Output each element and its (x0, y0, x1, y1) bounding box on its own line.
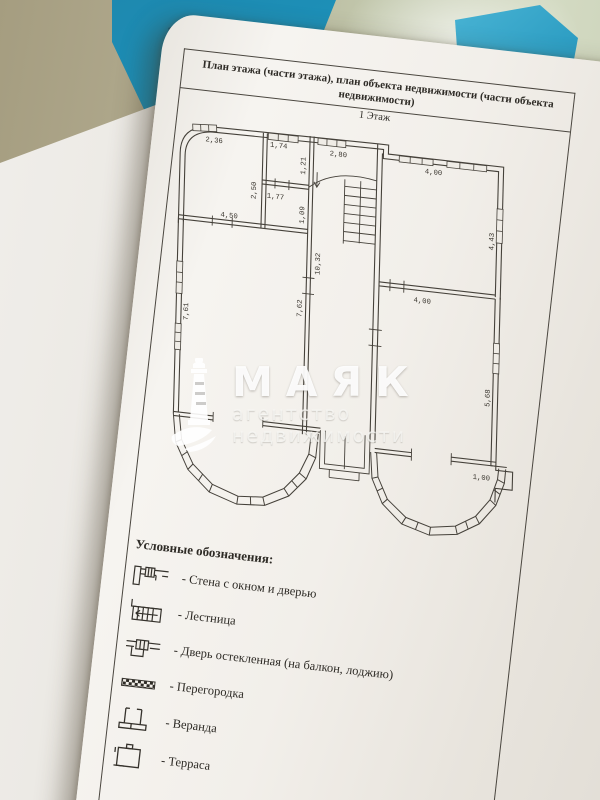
dim-room-tr-height: 4,43 (489, 233, 497, 251)
plan-porch (319, 430, 370, 482)
dim-hall-width: 2,80 (330, 150, 348, 160)
plan-windows (175, 121, 505, 386)
dim-room-tl-height: 2,50 (251, 181, 259, 199)
plan-dimensions: 2,36 1,74 2,80 4,00 1,77 4,50 4,00 1,00 … (179, 132, 498, 484)
dim-room-t2-height: 1,09 (299, 206, 307, 224)
legend: Условные обозначения: - Стена с окном и … (109, 536, 484, 800)
plan-walls (172, 121, 521, 504)
wall-window-door-icon (131, 560, 172, 590)
dim-room-t2-width: 1,77 (267, 193, 285, 203)
legend-item-label: - Лестница (177, 607, 236, 628)
plan-bay-right (369, 452, 506, 544)
dim-wall-left-height: 7,61 (183, 302, 191, 321)
dim-room-br-width: 4,00 (413, 297, 431, 307)
dim-wall-mid-lower: 7,62 (296, 299, 304, 317)
plan-bay-left (171, 413, 318, 513)
stairs-icon (127, 596, 168, 627)
dim-room-br-height: 5,68 (484, 389, 492, 407)
dim-wall-mid-upper: 10,32 (315, 253, 324, 276)
photo-scene: План этажа (части этажа), план объекта н… (0, 0, 600, 800)
glazed-door-icon (123, 632, 164, 662)
plan-staircase (307, 171, 376, 247)
veranda-icon (114, 703, 155, 735)
dim-step-width: 1,00 (473, 474, 491, 484)
plan-door-ticks (207, 171, 458, 465)
legend-item-label: - Перегородка (169, 679, 245, 702)
dim-room-tr-width: 4,00 (425, 168, 443, 178)
floor-plan-drawing: 2,36 1,74 2,80 4,00 1,77 4,50 4,00 1,00 … (151, 108, 559, 559)
floor-plan: 2,36 1,74 2,80 4,00 1,77 4,50 4,00 1,00 … (151, 108, 559, 559)
dim-room-t1-height: 1,21 (300, 156, 308, 175)
terrace-icon (110, 740, 151, 774)
legend-item-label: - Стена с окном и дверью (181, 571, 317, 601)
legend-item-label: - Терраса (160, 753, 211, 773)
dim-room-tl-width: 2,36 (205, 136, 223, 146)
legend-item-label: - Веранда (165, 715, 218, 736)
partition-icon (119, 672, 159, 694)
dim-room-t1-width: 1,74 (270, 142, 288, 152)
